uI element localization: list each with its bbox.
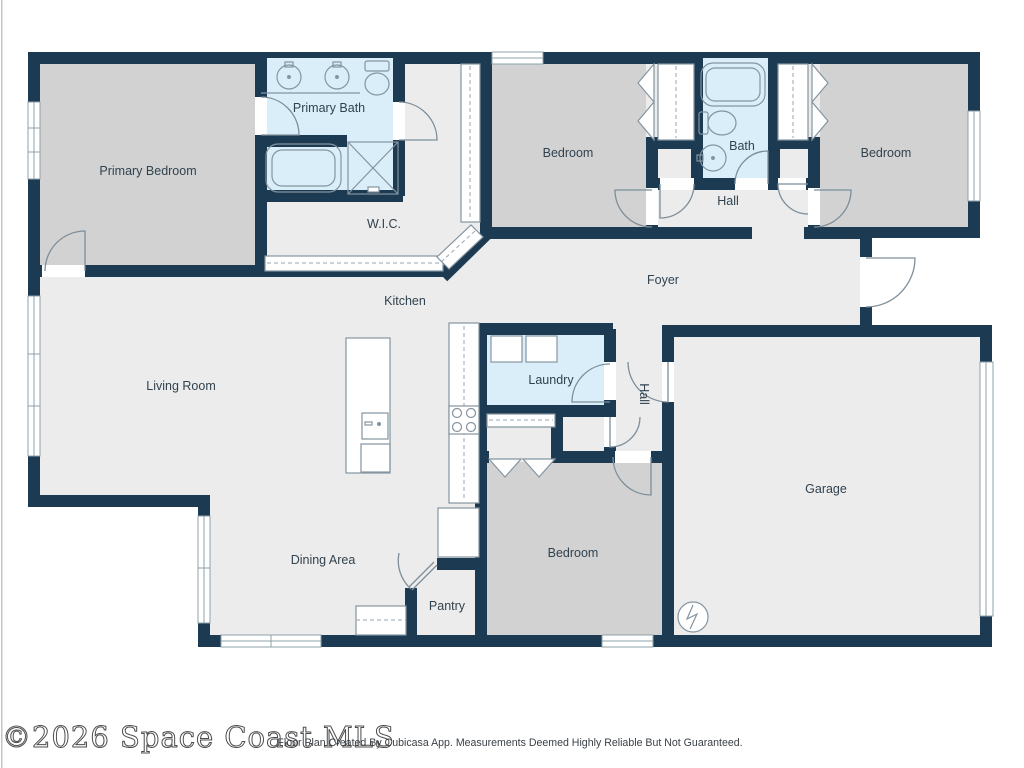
room-label-bedroom-bottom: Bedroom [548,546,599,560]
wardrobe-icon [778,64,808,140]
floor-plan-page: Primary Bedroom Primary Bath W.I.C. Bedr… [0,0,1024,768]
disclaimer-text: Floor Plan Created By Cubicasa App. Meas… [277,737,742,749]
window [968,111,980,201]
wardrobe-icon [461,64,480,222]
room-label-bedroom-top-right: Bedroom [861,146,912,160]
dining-counter [356,606,406,635]
room-label-hall-lower: Hall [637,383,651,405]
room-label-garage: Garage [805,482,847,496]
room-label-wic: W.I.C. [367,217,401,231]
left-edge-line [1,0,3,768]
room-label-primary-bedroom: Primary Bedroom [99,164,196,178]
room-label-primary-bath: Primary Bath [293,101,365,115]
window [492,52,543,64]
window [198,516,210,623]
room-label-bedroom-top-middle: Bedroom [543,146,594,160]
room-label-laundry: Laundry [528,373,574,387]
room-label-foyer: Foyer [647,273,679,287]
wardrobe-icon [658,64,694,140]
window [28,102,40,179]
door-swing-icon [866,258,915,307]
washer-icon [491,336,522,362]
window [602,635,653,647]
refrigerator-icon [438,508,479,557]
window [221,635,321,647]
window [28,296,40,456]
wardrobe-icon [265,256,443,271]
garage-door [980,362,993,616]
room-label-dining-area: Dining Area [291,553,356,567]
room-label-living-room: Living Room [146,379,215,393]
room-label-bath: Bath [729,139,755,153]
dryer-icon [526,336,557,362]
room-label-hall-upper: Hall [717,194,739,208]
room-label-kitchen: Kitchen [384,294,426,308]
room-label-pantry: Pantry [429,599,466,613]
closet-shelf [487,414,555,427]
stove-icon [449,406,479,434]
kitchen-island [346,338,390,473]
water-heater-icon [678,602,708,632]
room-fill-primary-bath [261,58,395,192]
floor-plan-image: Primary Bedroom Primary Bath W.I.C. Bedr… [0,0,1024,768]
